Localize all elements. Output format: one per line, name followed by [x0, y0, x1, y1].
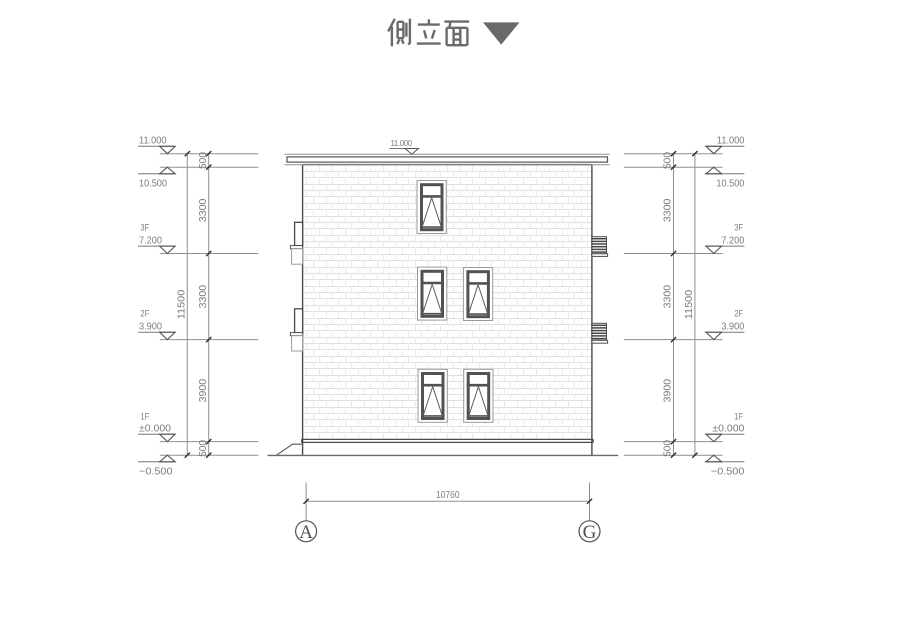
svg-text:±0.000: ±0.000: [712, 423, 744, 434]
svg-text:11500: 11500: [684, 289, 695, 319]
svg-text:500: 500: [663, 152, 674, 169]
svg-text:3300: 3300: [663, 198, 674, 222]
svg-text:11500: 11500: [176, 289, 187, 319]
svg-text:10760: 10760: [436, 490, 460, 501]
svg-text:3.900: 3.900: [139, 321, 162, 332]
svg-text:2F: 2F: [734, 309, 743, 320]
svg-text:10.500: 10.500: [716, 178, 744, 189]
svg-text:3900: 3900: [663, 378, 674, 402]
svg-text:±0.000: ±0.000: [139, 423, 171, 434]
svg-text:11.000: 11.000: [391, 139, 413, 148]
svg-text:3300: 3300: [663, 284, 674, 308]
svg-text:500: 500: [198, 152, 209, 169]
svg-text:11.000: 11.000: [139, 136, 167, 147]
svg-text:−0.500: −0.500: [139, 466, 173, 477]
svg-text:3900: 3900: [198, 378, 209, 402]
svg-text:A: A: [299, 522, 313, 543]
svg-text:500: 500: [198, 439, 209, 456]
svg-text:3.900: 3.900: [721, 321, 744, 332]
svg-text:3300: 3300: [198, 198, 209, 222]
svg-text:1F: 1F: [734, 412, 743, 423]
svg-text:1F: 1F: [140, 412, 149, 423]
svg-text:500: 500: [663, 439, 674, 456]
svg-text:−0.500: −0.500: [711, 466, 745, 477]
svg-text:7.200: 7.200: [139, 235, 162, 246]
svg-text:3F: 3F: [734, 222, 743, 233]
svg-text:2F: 2F: [140, 309, 149, 320]
svg-text:10.500: 10.500: [139, 178, 167, 189]
svg-text:3F: 3F: [140, 222, 149, 233]
svg-text:7.200: 7.200: [721, 235, 744, 246]
svg-text:11.000: 11.000: [717, 136, 745, 147]
svg-text:G: G: [583, 522, 597, 543]
svg-text:3300: 3300: [198, 284, 209, 308]
